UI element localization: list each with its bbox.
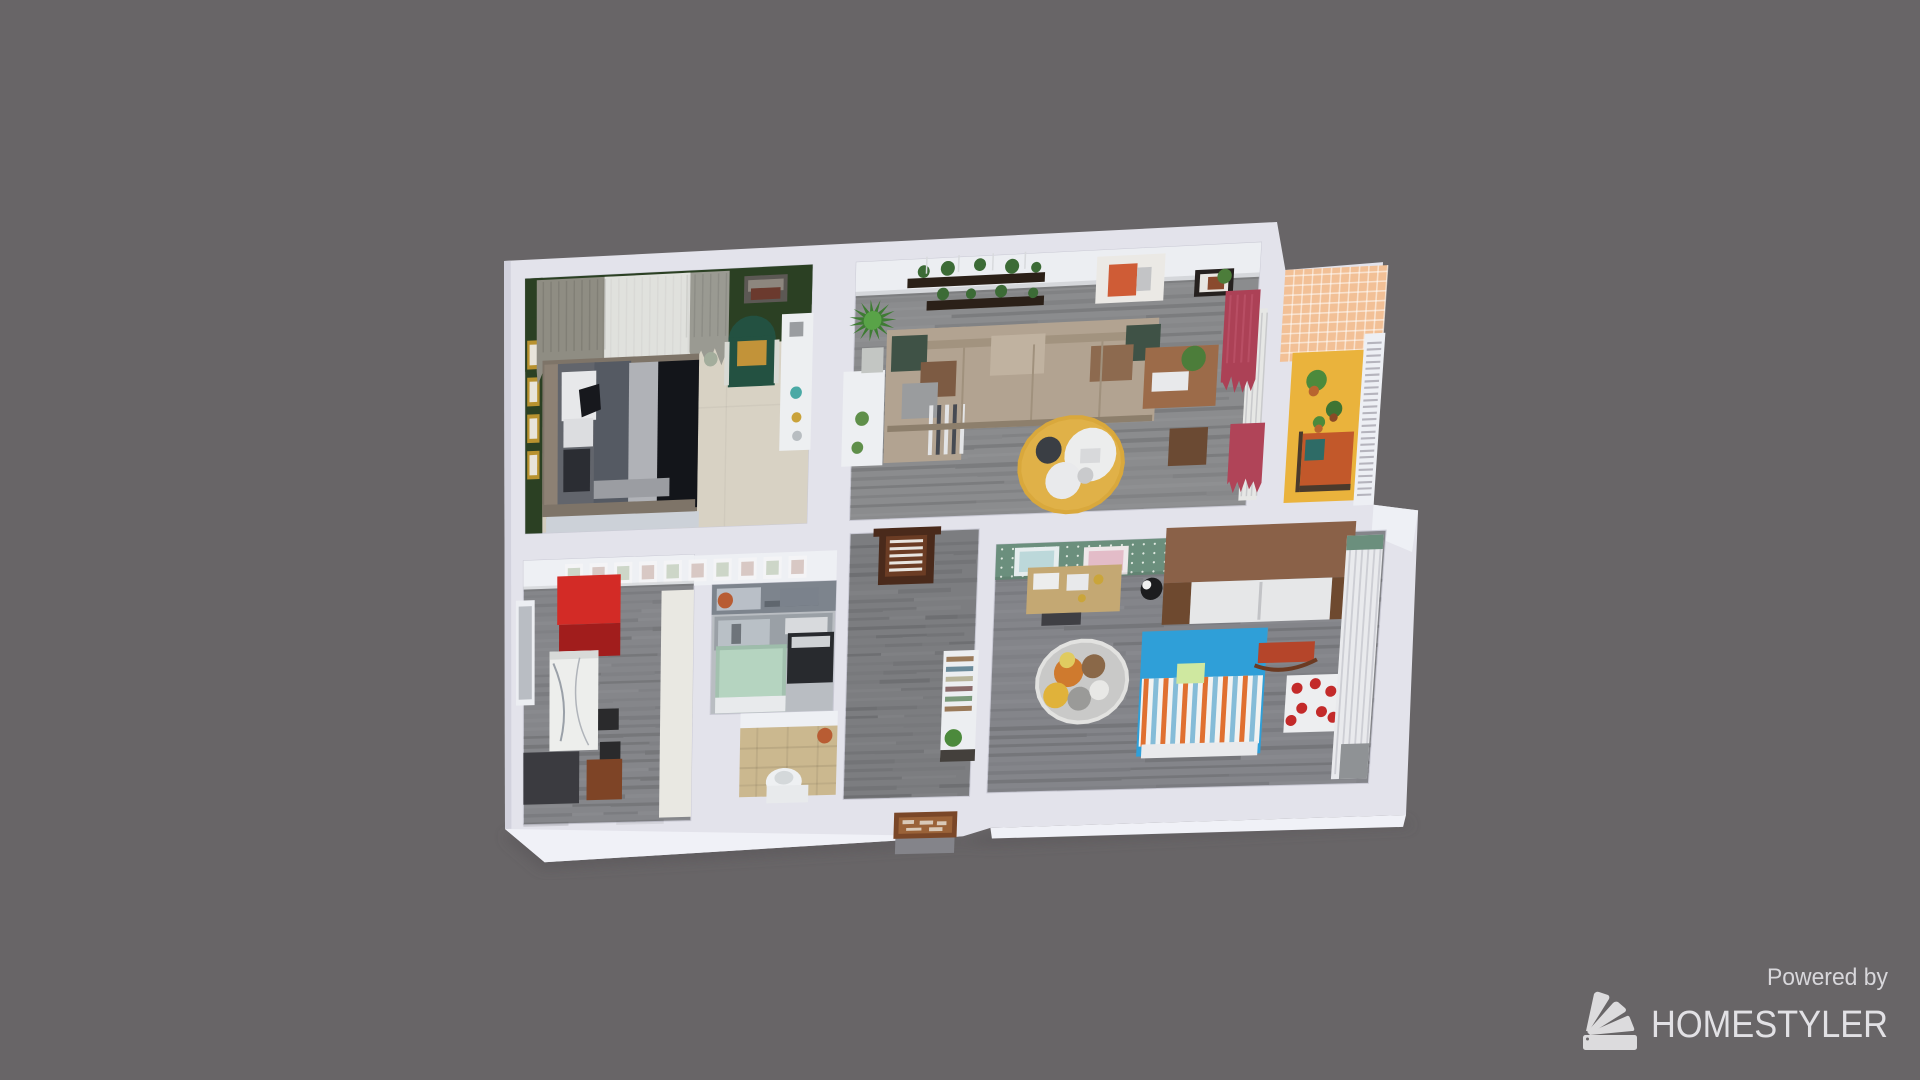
svg-text:Powered by: Powered by [1767, 964, 1888, 991]
svg-text:HOMESTYLER: HOMESTYLER [1651, 1004, 1888, 1046]
